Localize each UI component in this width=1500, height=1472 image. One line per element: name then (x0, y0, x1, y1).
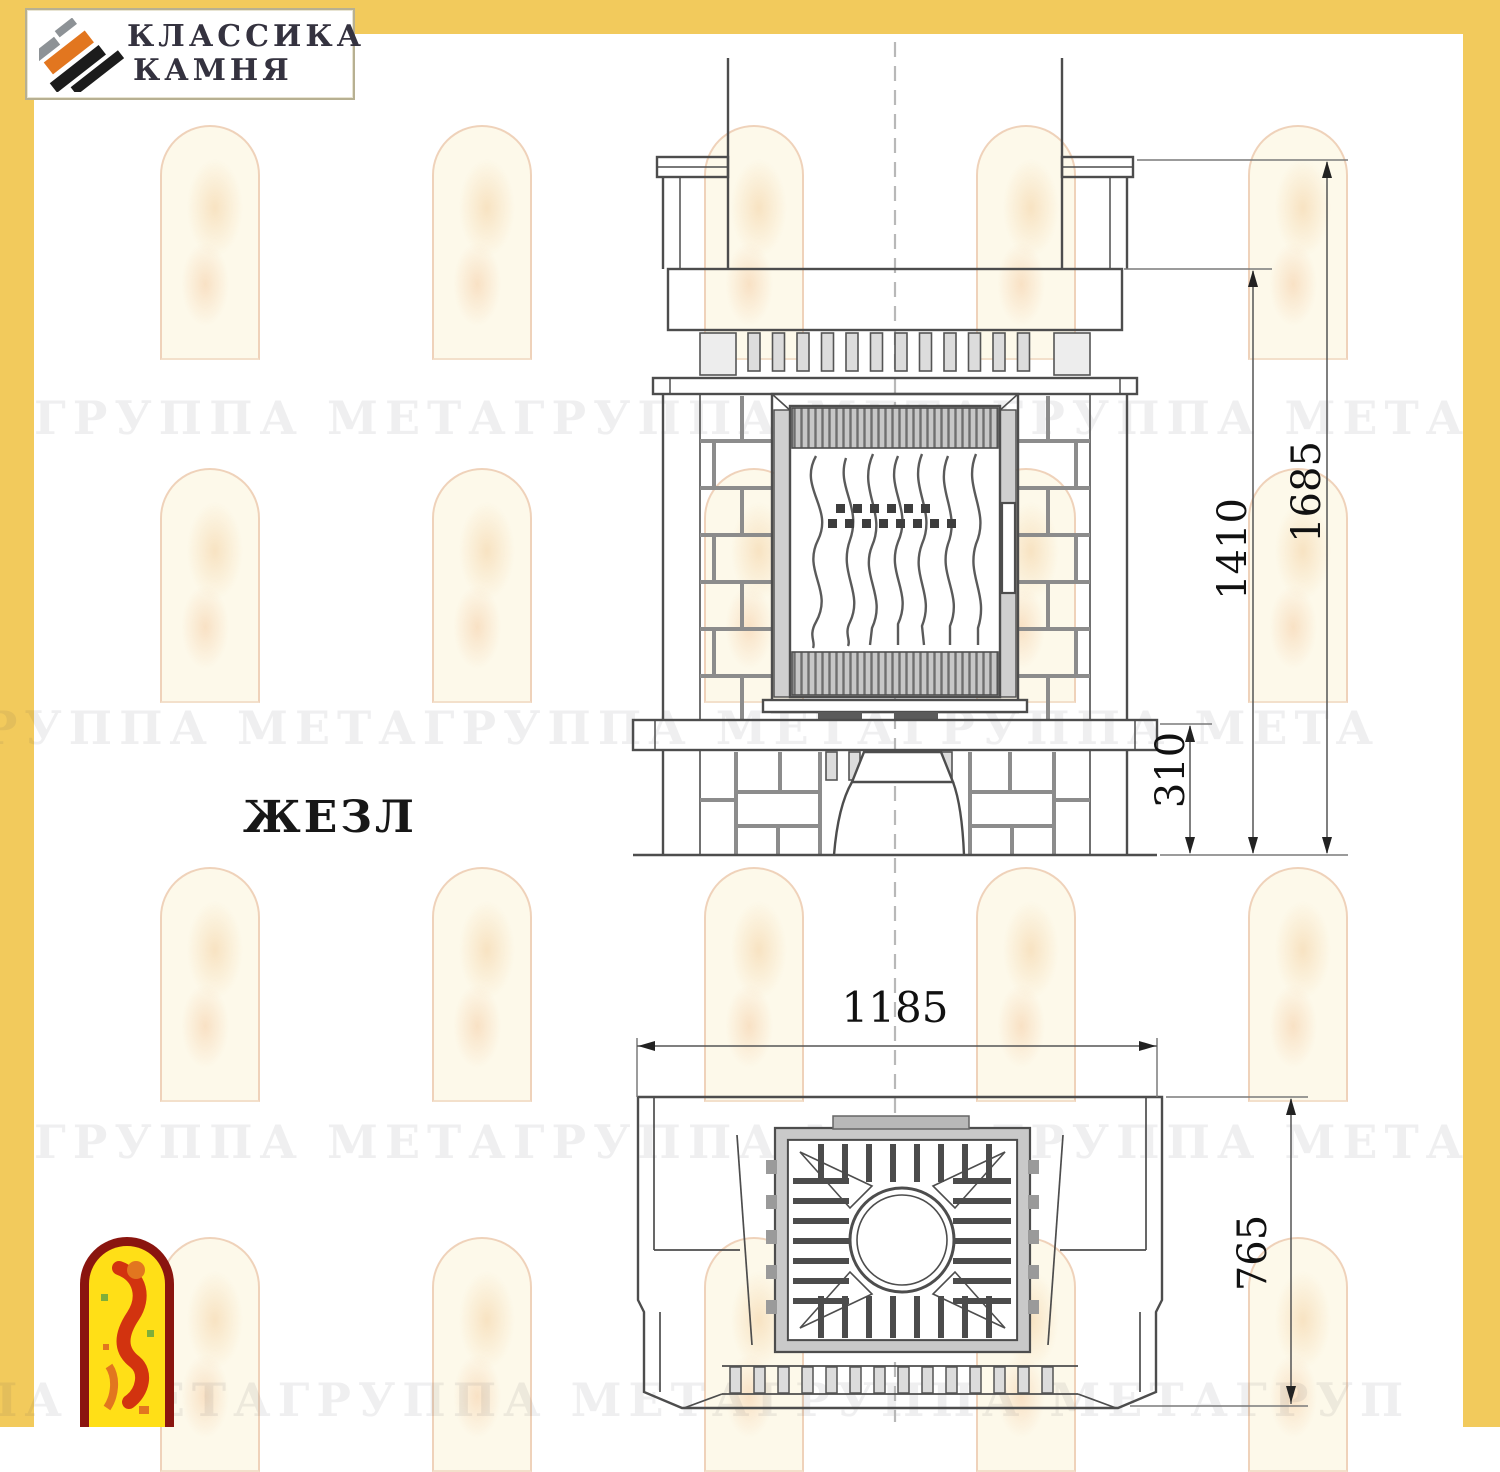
stone-ashlar-right (970, 752, 1090, 855)
stained-glass-emblem-icon (80, 1237, 174, 1427)
door-handle (1002, 503, 1015, 593)
plan-view (638, 1097, 1162, 1408)
stone-ashlar-left (700, 752, 820, 855)
dim-hearth-height: 310 (1148, 732, 1194, 808)
bottom-grille (792, 652, 998, 695)
wood-niche-arch (834, 782, 964, 855)
vent-foot (818, 712, 862, 720)
model-name-label: ЖЕЗЛ (243, 792, 417, 843)
dim-total-height: 1685 (1284, 441, 1330, 543)
firebox (763, 394, 1027, 720)
dentil-frieze-upper (700, 333, 1090, 375)
brand-logo: КЛАССИКА КАМНЯ (25, 8, 355, 100)
front-elevation (633, 58, 1157, 855)
brand-emblem-icon (39, 18, 124, 92)
fireplace-technical-drawing: 1685 1410 310 1185 765 (0, 0, 1500, 1427)
dim-plan-depth: 765 (1230, 1215, 1276, 1291)
vent-foot (894, 712, 938, 720)
damper-bar (833, 1116, 969, 1129)
brand-name-line1: КЛАССИКА (127, 20, 352, 54)
plan-firebox (766, 1116, 1039, 1352)
brand-name-line2: КАМНЯ (133, 54, 352, 88)
arch-keystone (852, 752, 953, 782)
dim-plan-width: 1185 (842, 983, 949, 1032)
flue-opening (850, 1188, 954, 1292)
plan-dentil-teeth (730, 1367, 1053, 1393)
top-grille (792, 408, 998, 448)
brand-name: КЛАССИКА КАМНЯ (127, 20, 352, 88)
stained-glass-bird-icon (89, 1246, 165, 1427)
dim-mantel-height: 1410 (1210, 498, 1256, 600)
firebox-sill (763, 700, 1027, 712)
